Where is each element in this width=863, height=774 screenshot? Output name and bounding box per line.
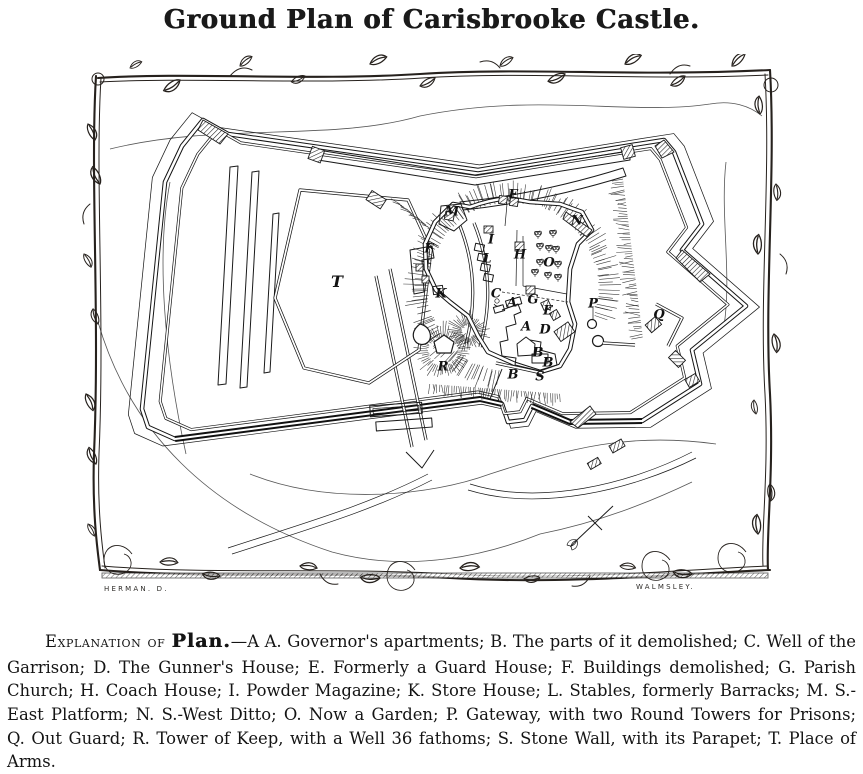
map-label-D-16: D xyxy=(539,324,550,337)
map-label-T-0: T xyxy=(331,274,343,290)
map-label-P-14: P xyxy=(588,298,598,311)
map-label-B-20: B xyxy=(508,369,519,382)
explanation-key-10: L. xyxy=(547,681,563,700)
map-label-F-2: F xyxy=(508,189,517,202)
map-label-L-5: L xyxy=(482,253,491,266)
explanation-key-8: I. xyxy=(228,681,240,700)
explanation-key-15: Q. xyxy=(7,729,25,748)
map-label-K-9: K xyxy=(435,288,446,301)
explanation-key-4: E. xyxy=(308,658,325,677)
engraving: TMFFILHNOKCAGEPADBBRBSQ HERMAN. D. WALMS… xyxy=(70,54,805,604)
explanation-key-5: F. xyxy=(561,658,575,677)
explanation-key-6: G. xyxy=(778,658,796,677)
inner-works xyxy=(218,166,502,468)
explanation-key-3: D. xyxy=(93,658,111,677)
explanation-key-0: A A. xyxy=(247,632,281,651)
explanation-key-12: N. xyxy=(136,705,155,724)
explanation-key-1: B. xyxy=(490,632,507,651)
explanation-key-9: K. xyxy=(407,681,424,700)
engraving-art xyxy=(70,54,805,604)
map-label-O-8: O xyxy=(543,257,554,270)
map-label-Q-22: Q xyxy=(653,309,664,322)
explanation-key-17: S. xyxy=(498,729,514,748)
explanation-key-7: H. xyxy=(80,681,100,700)
map-label-E-13: E xyxy=(543,305,553,318)
page: { "page": { "background": "#ffffff", "in… xyxy=(0,0,863,756)
map-label-G-12: G xyxy=(527,294,538,307)
explanation-plan-word: Plan. xyxy=(172,630,231,652)
map-label-A-11: A xyxy=(507,297,517,310)
explanation-key-13: O. xyxy=(284,705,302,724)
engraver-credit-right: WALMSLEY. xyxy=(636,583,695,591)
explanation-key-2: C. xyxy=(744,632,761,651)
north-arrow-icon xyxy=(567,506,613,550)
explanation-key-16: R. xyxy=(132,729,150,748)
map-label-N-7: N xyxy=(571,215,583,228)
map-label-A-15: A xyxy=(521,321,531,334)
map-label-M-1: M xyxy=(445,206,459,219)
map-label-F-3: F xyxy=(424,243,433,256)
page-title: Ground Plan of Carisbrooke Castle. xyxy=(0,5,863,35)
map-label-H-6: H xyxy=(514,249,526,262)
castle xyxy=(410,195,682,373)
explanation-key-18: T. xyxy=(768,729,782,748)
map-label-C-10: C xyxy=(491,288,501,301)
map-label-B-18: B xyxy=(543,357,554,370)
map-label-S-21: S xyxy=(535,371,544,384)
map-label-R-19: R xyxy=(438,361,449,374)
explanation-paragraph: Explanation of Plan.—A A. Governor's apa… xyxy=(0,628,863,773)
explanation-heading: Explanation of xyxy=(45,632,172,651)
explanation-key-14: P. xyxy=(446,705,459,724)
engraver-credit-left: HERMAN. D. xyxy=(104,585,169,593)
explanation-key-11: M. xyxy=(806,681,828,700)
map-label-I-4: I xyxy=(488,234,494,247)
